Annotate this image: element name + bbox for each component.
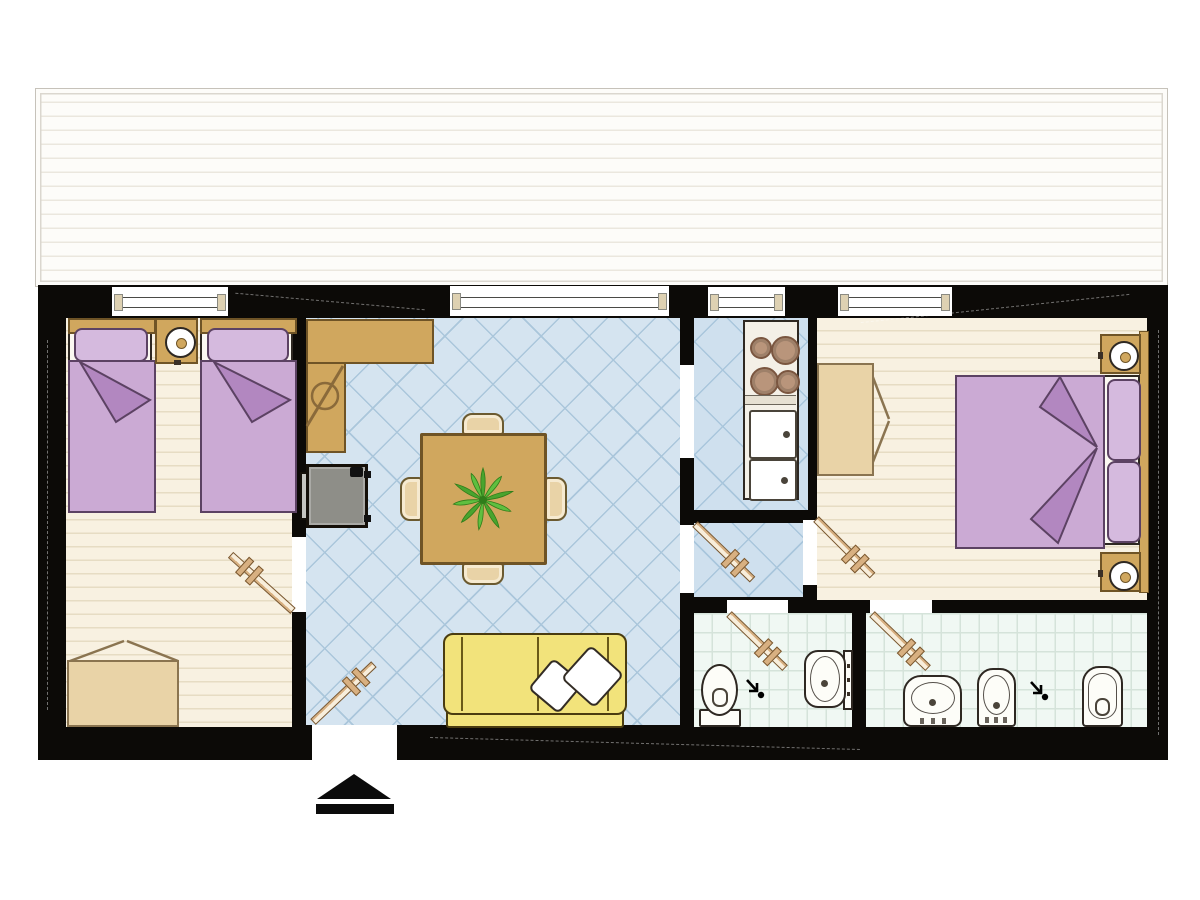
floor-drain-arrow [742, 676, 766, 700]
washbasin [903, 675, 962, 727]
single-bed-left [68, 318, 152, 507]
floor-drain-arrow [1026, 678, 1050, 702]
entrance-arrow-icon [317, 774, 391, 799]
bed-pillow [1107, 379, 1141, 461]
window-rail [842, 297, 948, 308]
bidet-mark [1003, 717, 1007, 723]
bathroom-right-door-opening [870, 600, 932, 613]
bedroom-right-door-opening [803, 520, 817, 585]
bedroom-left-door-opening [292, 537, 306, 612]
drain-dot [929, 699, 936, 706]
window-cap [710, 294, 719, 311]
toilet-bowl [701, 664, 738, 716]
cabinet-dot [847, 692, 850, 696]
bed-blanket [200, 360, 297, 513]
toilet-drain [1095, 698, 1110, 716]
window-cap [774, 294, 783, 311]
burner-small [750, 337, 772, 359]
window-cap [840, 294, 849, 311]
burner-large [771, 336, 800, 365]
sink-basin [749, 459, 797, 501]
wall-hatch [1158, 330, 1159, 735]
drain-dot [821, 680, 828, 687]
entrance-arrow-bar [316, 804, 394, 814]
basin-inner [911, 682, 955, 714]
counter-joint [309, 322, 343, 362]
toilet-drain [712, 688, 728, 707]
wardrobe [67, 660, 179, 727]
basin-mark [931, 718, 935, 724]
washbasin [804, 650, 846, 708]
lamp-dot [1120, 572, 1131, 583]
bathroom-left-door-opening [727, 600, 788, 613]
lamp-dot [1120, 352, 1131, 363]
cabinet-dot [847, 664, 850, 668]
bed-pillow [74, 328, 148, 362]
living-room-window [450, 286, 669, 316]
dining-chair-left [400, 477, 422, 521]
window-rail [712, 297, 781, 308]
bidet-mark [985, 717, 989, 723]
stove-hinge [364, 471, 371, 478]
counter-board [301, 360, 347, 432]
table-lamp [1109, 341, 1139, 371]
blanket-fold [68, 360, 152, 509]
burner-large [750, 367, 779, 396]
cabinet-dot [847, 678, 850, 682]
burner-small [776, 370, 800, 394]
bed-blanket [955, 375, 1105, 549]
entrance-opening [312, 725, 397, 760]
stove-hinge [364, 515, 371, 522]
toilet [1082, 666, 1123, 727]
kitchen-window [708, 287, 785, 316]
kitchen-unit [743, 320, 799, 500]
bed-blanket [68, 360, 156, 513]
double-bed [955, 375, 1140, 545]
nightstand [155, 318, 198, 364]
window-cap [452, 293, 461, 310]
drain-dot [993, 702, 1000, 709]
nightstand-knob [1098, 570, 1103, 577]
stove-pipe [350, 467, 363, 477]
blanket-fold [955, 375, 1101, 545]
window-cap [658, 293, 667, 310]
bidet-inner [983, 675, 1010, 715]
bidet-mark [994, 717, 998, 723]
basin-mark [942, 718, 946, 724]
drain-dot [783, 431, 790, 438]
bedroom-left-window [112, 287, 228, 316]
potted-plant [447, 464, 519, 536]
counter-divider [745, 395, 796, 405]
nightstand [1100, 334, 1141, 374]
table-lamp [165, 327, 196, 358]
bed-pillow [207, 328, 289, 362]
table-lamp [1109, 561, 1139, 591]
window-cap [217, 294, 226, 311]
wardrobe [817, 363, 874, 476]
window-rail [116, 297, 224, 308]
nightstand-knob [174, 360, 181, 365]
window-cap [941, 294, 950, 311]
basin-inner [810, 656, 840, 702]
dining-chair-top [462, 413, 504, 435]
basin-mark [920, 718, 924, 724]
kitchen-passage-opening [680, 365, 694, 458]
sofa-seam [461, 637, 463, 711]
window-cap [114, 294, 123, 311]
bidet [977, 668, 1016, 727]
drain-dot [781, 477, 788, 484]
hallway-door-opening [680, 525, 694, 593]
lamp-dot [176, 338, 187, 349]
blanket-fold [200, 360, 293, 509]
window-rail [454, 297, 665, 308]
wall-hatch [47, 340, 48, 710]
bed-pillow [1107, 461, 1141, 543]
dining-chair-bottom [462, 563, 504, 585]
floor-plan [0, 0, 1200, 900]
nightstand-knob [1098, 352, 1103, 359]
terrace-deck [35, 88, 1168, 287]
bedroom-right-window [838, 287, 952, 316]
dining-chair-right [545, 477, 567, 521]
single-bed-right [200, 318, 293, 507]
sink-basin [749, 410, 797, 459]
nightstand [1100, 552, 1141, 592]
